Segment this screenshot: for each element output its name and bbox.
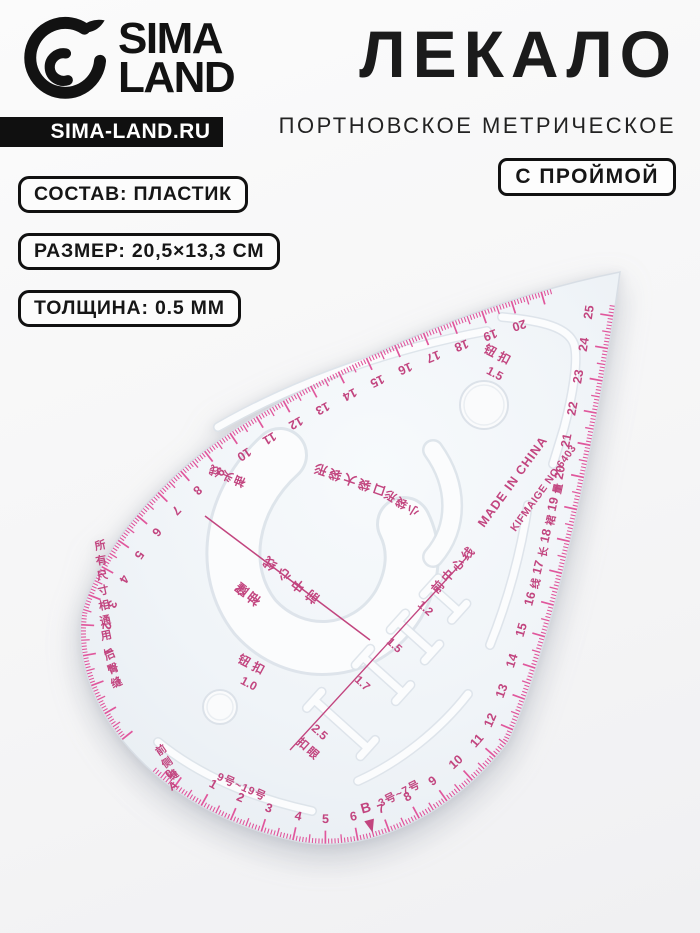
scale-tick	[605, 335, 610, 336]
ruler-template: 1234567891011121314151617181920123456789…	[80, 272, 620, 844]
scale-tick	[609, 312, 614, 313]
scale-number: 22	[564, 400, 580, 416]
scale-tick	[348, 837, 349, 842]
scale-number: 25	[581, 304, 597, 320]
column-left_col_1: 所	[93, 537, 107, 553]
scale-tick	[82, 615, 87, 616]
scale-tick	[81, 625, 94, 626]
scale-tick	[606, 328, 611, 329]
scale-tick	[83, 652, 88, 653]
scale-tick	[341, 834, 342, 842]
button-hole-large	[460, 381, 508, 429]
scale-number: 23	[570, 368, 586, 384]
scale-tick	[82, 619, 87, 620]
scale-number: 24	[576, 336, 592, 352]
ruler-body	[80, 272, 620, 844]
scale-tick	[82, 649, 87, 650]
ruler-photo: 1234567891011121314151617181920123456789…	[0, 0, 700, 933]
scale-tick	[344, 838, 345, 843]
scale-tick	[306, 837, 307, 842]
column-left_col_1: 有	[94, 552, 108, 568]
product-card: SIMA LAND SIMA-LAND.RU ЛЕКАЛО ПОРТНОВСКО…	[0, 0, 700, 933]
scale-tick	[607, 322, 612, 323]
button-hole-small	[203, 690, 237, 724]
scale-tick	[82, 646, 87, 647]
scale-tick	[309, 834, 310, 842]
scale-tick	[303, 837, 304, 842]
scale-tick	[351, 837, 352, 842]
scale-tick	[609, 309, 614, 310]
scale-tick	[607, 325, 612, 326]
scale-tick	[608, 319, 613, 320]
scale-tick	[81, 640, 89, 641]
scale-tick	[610, 306, 615, 307]
scale-number: 5	[322, 812, 329, 826]
